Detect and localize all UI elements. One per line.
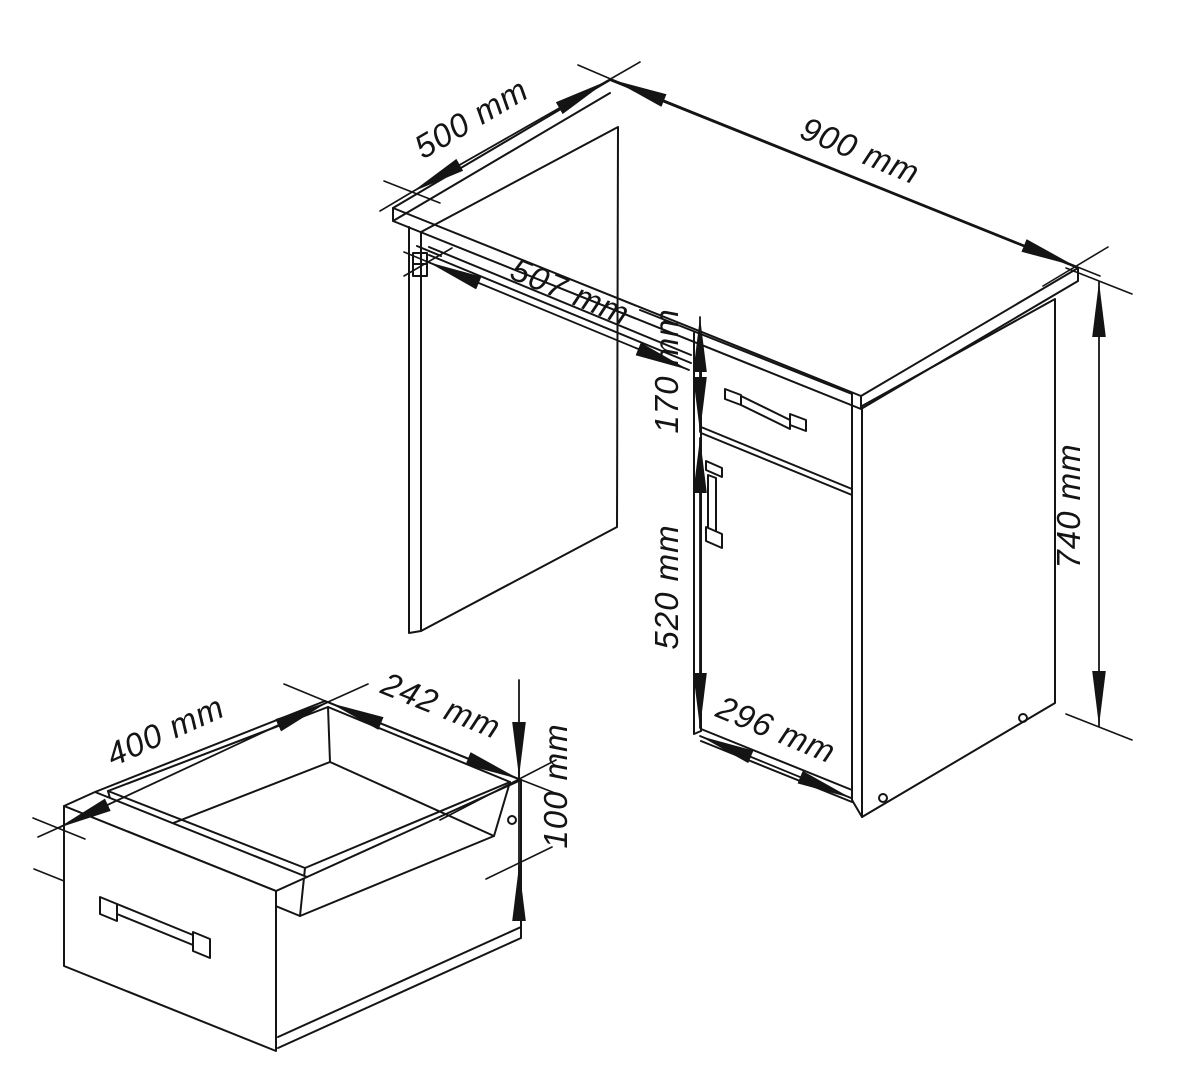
screw-hole [879, 794, 887, 802]
desk-drawer-handle [725, 389, 806, 431]
cabinet-right-edge [852, 394, 862, 817]
drawer-box-outer-wall [278, 780, 521, 1048]
dim-label-drawer-height: 100 mm [537, 723, 574, 848]
dim-label-total-height: 740 mm [1050, 443, 1087, 568]
dim-label-drawer-front-height: 170 mm [648, 308, 685, 433]
handle-bar [708, 475, 716, 536]
drawing-canvas: 500 mm 900 mm 507 mm 170 mm 520 mm 296 m… [0, 0, 1200, 1092]
door-handle [706, 461, 722, 548]
furniture-dimension-diagram: 500 mm 900 mm 507 mm 170 mm 520 mm 296 m… [0, 0, 1200, 1092]
handle-foot [706, 527, 722, 548]
left-panel-front-edge [409, 227, 421, 633]
drawer-door-divider [701, 427, 852, 495]
handle-foot [790, 414, 806, 431]
handle-foot [725, 389, 741, 405]
dim-label-cabinet-width: 296 mm [711, 688, 842, 770]
screw-hole [508, 816, 516, 824]
handle-bar [741, 396, 790, 429]
dim-label-drawer-depth: 400 mm [101, 688, 230, 774]
dim-label-door-height: 520 mm [648, 524, 685, 649]
